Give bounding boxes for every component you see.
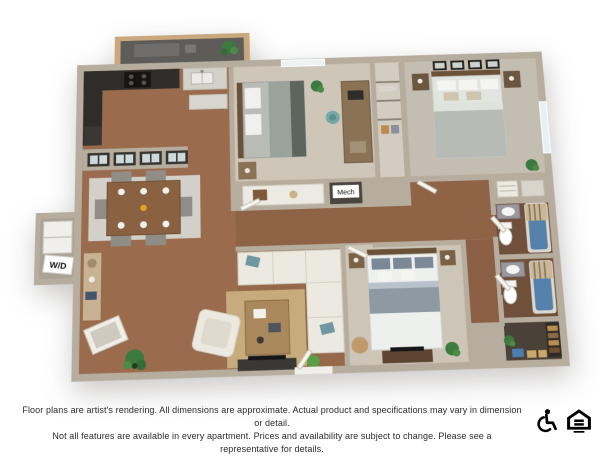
bath1-tub: [524, 202, 552, 252]
bedroom3-bed: [367, 248, 443, 351]
closet-box: [512, 349, 524, 358]
desk-monitor: [347, 90, 363, 100]
bath2-tub: [529, 260, 557, 314]
stove: [124, 71, 151, 88]
dining-chair: [95, 199, 107, 219]
bath2-shower-curtain: [530, 261, 553, 279]
kitchen-counter-pass: [189, 94, 227, 109]
mech-closet: Mech: [329, 182, 362, 204]
dining-area: [81, 146, 201, 247]
disclaimer-line-1: Floor plans are artist's rendering. All …: [22, 404, 522, 430]
master-bed: [431, 69, 507, 158]
coffee-table: [245, 300, 290, 355]
refrigerator: [84, 126, 102, 146]
bedroom2-window: [281, 59, 324, 67]
footer-icons: [533, 408, 592, 434]
wd-sign: W/D: [43, 255, 74, 275]
dining-chair: [180, 197, 192, 217]
closet-box: [538, 350, 547, 358]
disclaimer-line-2: Not all features are available in every …: [22, 430, 522, 456]
balcony-table: [185, 44, 196, 53]
console-decor: [85, 291, 97, 300]
bed-throw: [290, 81, 306, 157]
floor-plan-svg: W/D: [19, 24, 592, 416]
mech-label: Mech: [337, 189, 355, 197]
floor-plan-rendering: W/D: [19, 24, 592, 416]
bath1-shower-curtain: [525, 203, 548, 220]
wd-label: W/D: [49, 259, 67, 271]
closet-box: [527, 350, 537, 358]
bedroom2-bed: [237, 81, 307, 159]
equal-housing-icon: [566, 408, 592, 434]
disclaimer-text: Floor plans are artist's rendering. All …: [22, 404, 522, 456]
niche-frame: [253, 189, 267, 200]
armchair: [191, 308, 241, 357]
balcony-lounge: [134, 43, 179, 57]
accessibility-icon: [533, 408, 559, 434]
